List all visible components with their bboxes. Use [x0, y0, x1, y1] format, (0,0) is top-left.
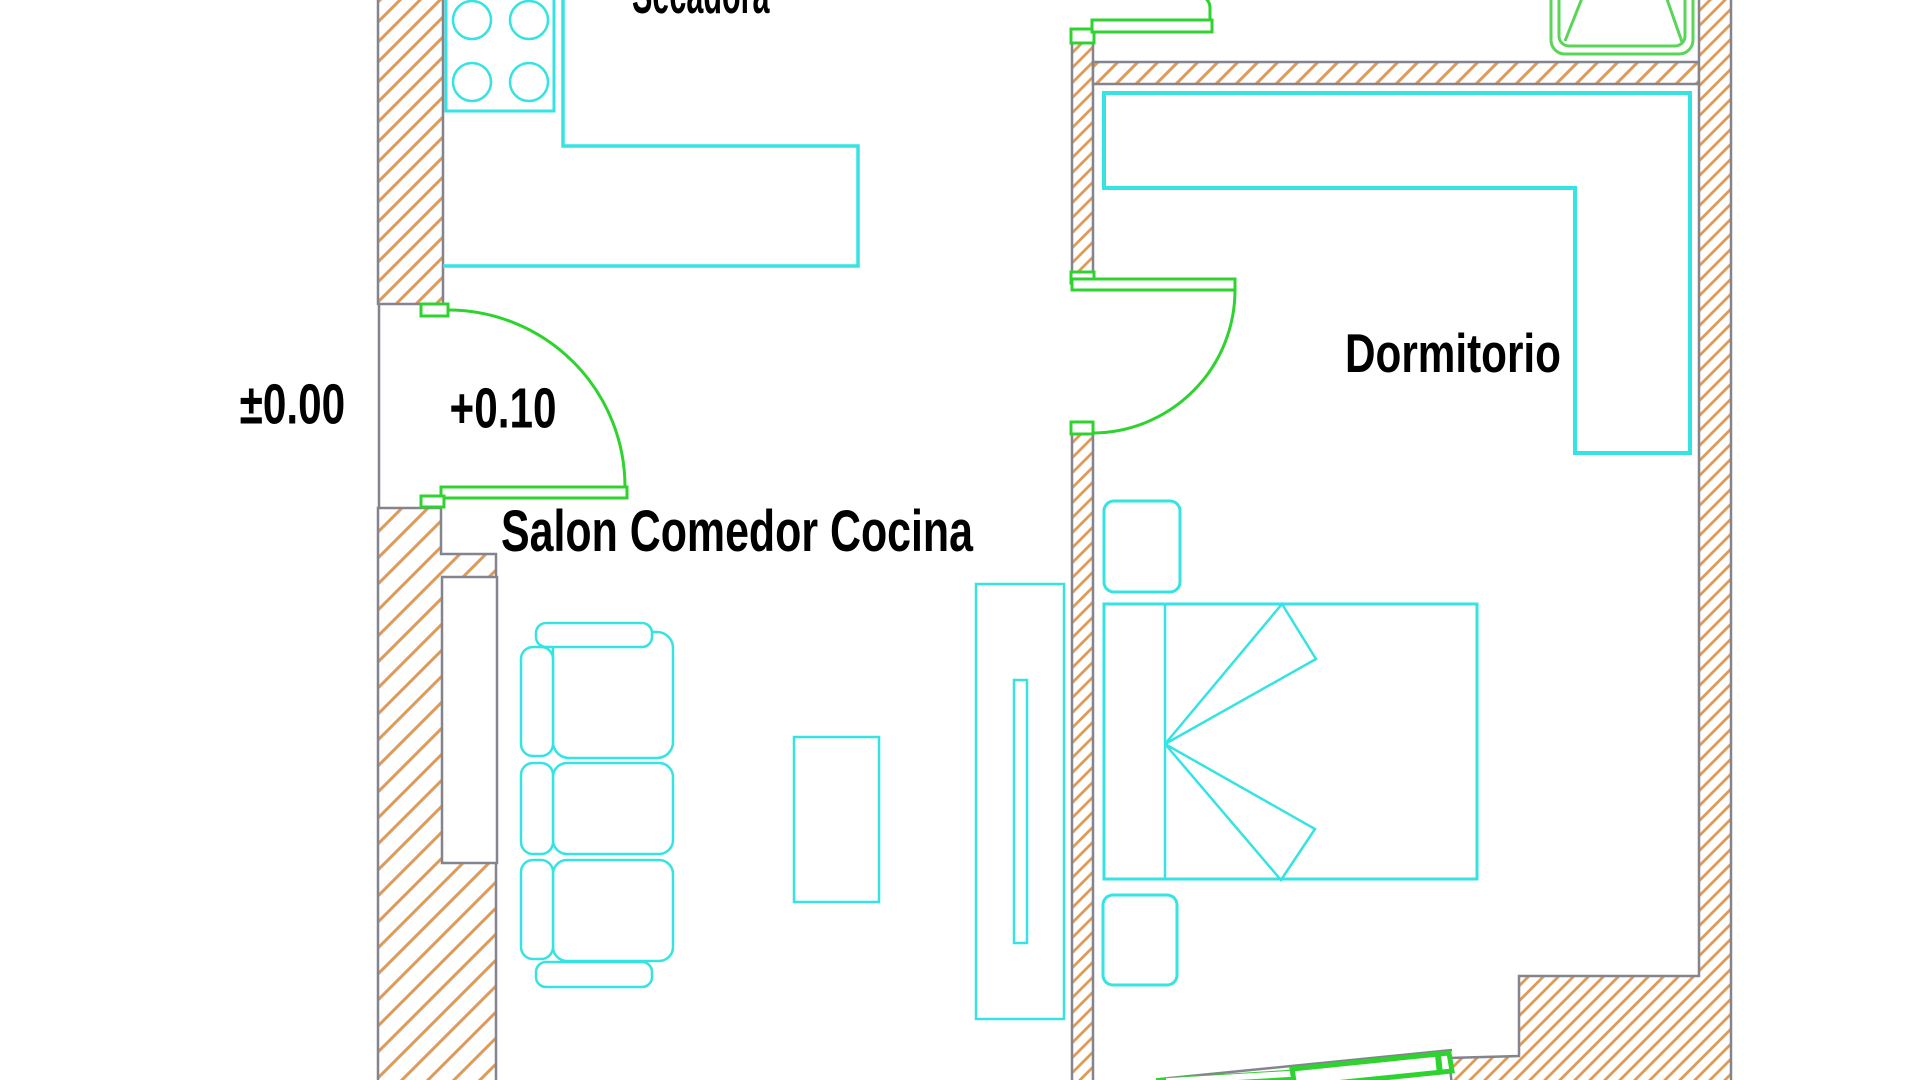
svg-text:Salon Comedor Cocina: Salon Comedor Cocina	[501, 499, 974, 564]
svg-text:Dormitorio: Dormitorio	[1345, 322, 1561, 384]
svg-text:±0.00: ±0.00	[240, 373, 346, 437]
svg-text:+0.10: +0.10	[450, 377, 557, 441]
svg-text:Secadora: Secadora	[632, 0, 770, 25]
